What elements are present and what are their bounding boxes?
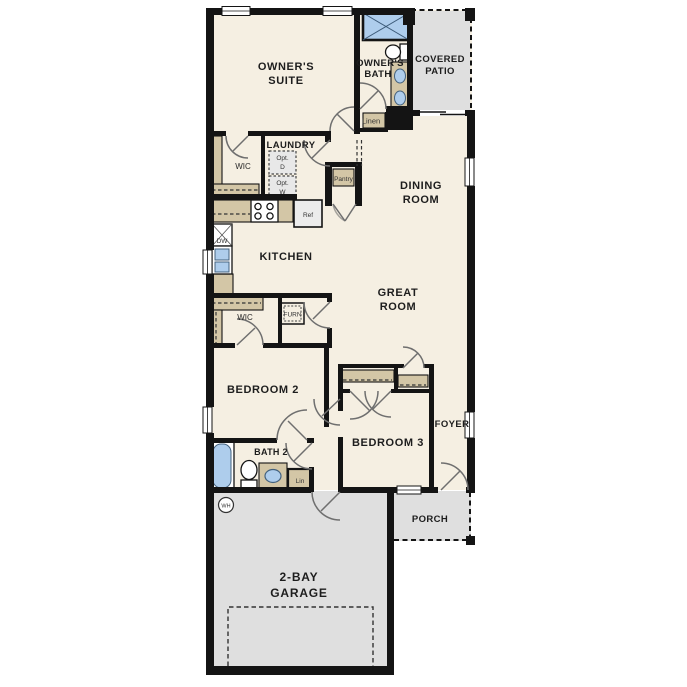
label-garage-1: 2-BAY xyxy=(280,570,319,584)
label-owners-bath-2: BATH xyxy=(364,69,391,80)
label-great-room-2: ROOM xyxy=(380,301,417,313)
label-opt-washer-2: W xyxy=(279,189,286,196)
label-covered-patio-2: PATIO xyxy=(425,66,455,77)
label-dw: DW xyxy=(217,238,229,245)
sink-owners-bath-1 xyxy=(395,69,406,83)
sliding-door-patio xyxy=(420,110,465,116)
window-bedroom3-porch xyxy=(397,486,421,494)
shower xyxy=(363,13,409,40)
label-bedroom2: BEDROOM 2 xyxy=(227,384,299,396)
floor-plan-drawing: OWNER'S SUITE OWNER'S BATH COVERED PATIO… xyxy=(0,0,687,687)
label-water-heater: WH xyxy=(221,504,230,510)
label-dining-1: DINING xyxy=(400,180,442,192)
window-bedroom2 xyxy=(203,407,212,433)
label-covered-patio-1: COVERED xyxy=(415,54,465,65)
window-owners-suite-2 xyxy=(323,7,352,16)
label-opt-dryer-1: Opt. xyxy=(276,155,288,162)
label-kitchen: KITCHEN xyxy=(259,251,312,263)
label-opt-washer-1: Opt. xyxy=(276,180,288,187)
label-laundry: LAUNDRY xyxy=(267,140,316,151)
label-pantry: Pantry xyxy=(334,176,354,183)
label-garage-2: GARAGE xyxy=(270,586,327,600)
label-foyer: FOYER xyxy=(435,419,470,430)
sink-bath2 xyxy=(265,470,281,483)
label-great-room-1: GREAT xyxy=(378,287,419,299)
sink-owners-bath-2 xyxy=(395,91,406,105)
label-owners-bath-1: OWNER'S xyxy=(356,58,404,69)
window-owners-suite-1 xyxy=(222,7,250,16)
kitchen-sink xyxy=(212,246,232,274)
floor-plan-page: OWNER'S SUITE OWNER'S BATH COVERED PATIO… xyxy=(0,0,687,687)
label-ref: Ref xyxy=(303,212,313,219)
label-owners-suite-2: SUITE xyxy=(268,75,303,87)
label-bedroom3: BEDROOM 3 xyxy=(352,437,424,449)
label-bath2: BATH 2 xyxy=(254,447,288,457)
toilet-bath2 xyxy=(241,461,257,490)
label-wic-hall: WIC xyxy=(237,313,253,322)
label-opt-dryer-2: D xyxy=(280,164,285,171)
label-linen: Linen xyxy=(362,117,380,126)
label-furnace: FURN xyxy=(283,312,301,319)
window-dining xyxy=(465,158,474,186)
label-wic-owners: WIC xyxy=(235,162,251,171)
label-lin: Lin xyxy=(296,478,305,485)
stove xyxy=(251,200,278,222)
label-porch: PORCH xyxy=(412,514,448,525)
window-kitchen-sink xyxy=(203,250,212,274)
label-dining-2: ROOM xyxy=(403,194,440,206)
label-owners-suite-1: OWNER'S xyxy=(258,61,314,73)
